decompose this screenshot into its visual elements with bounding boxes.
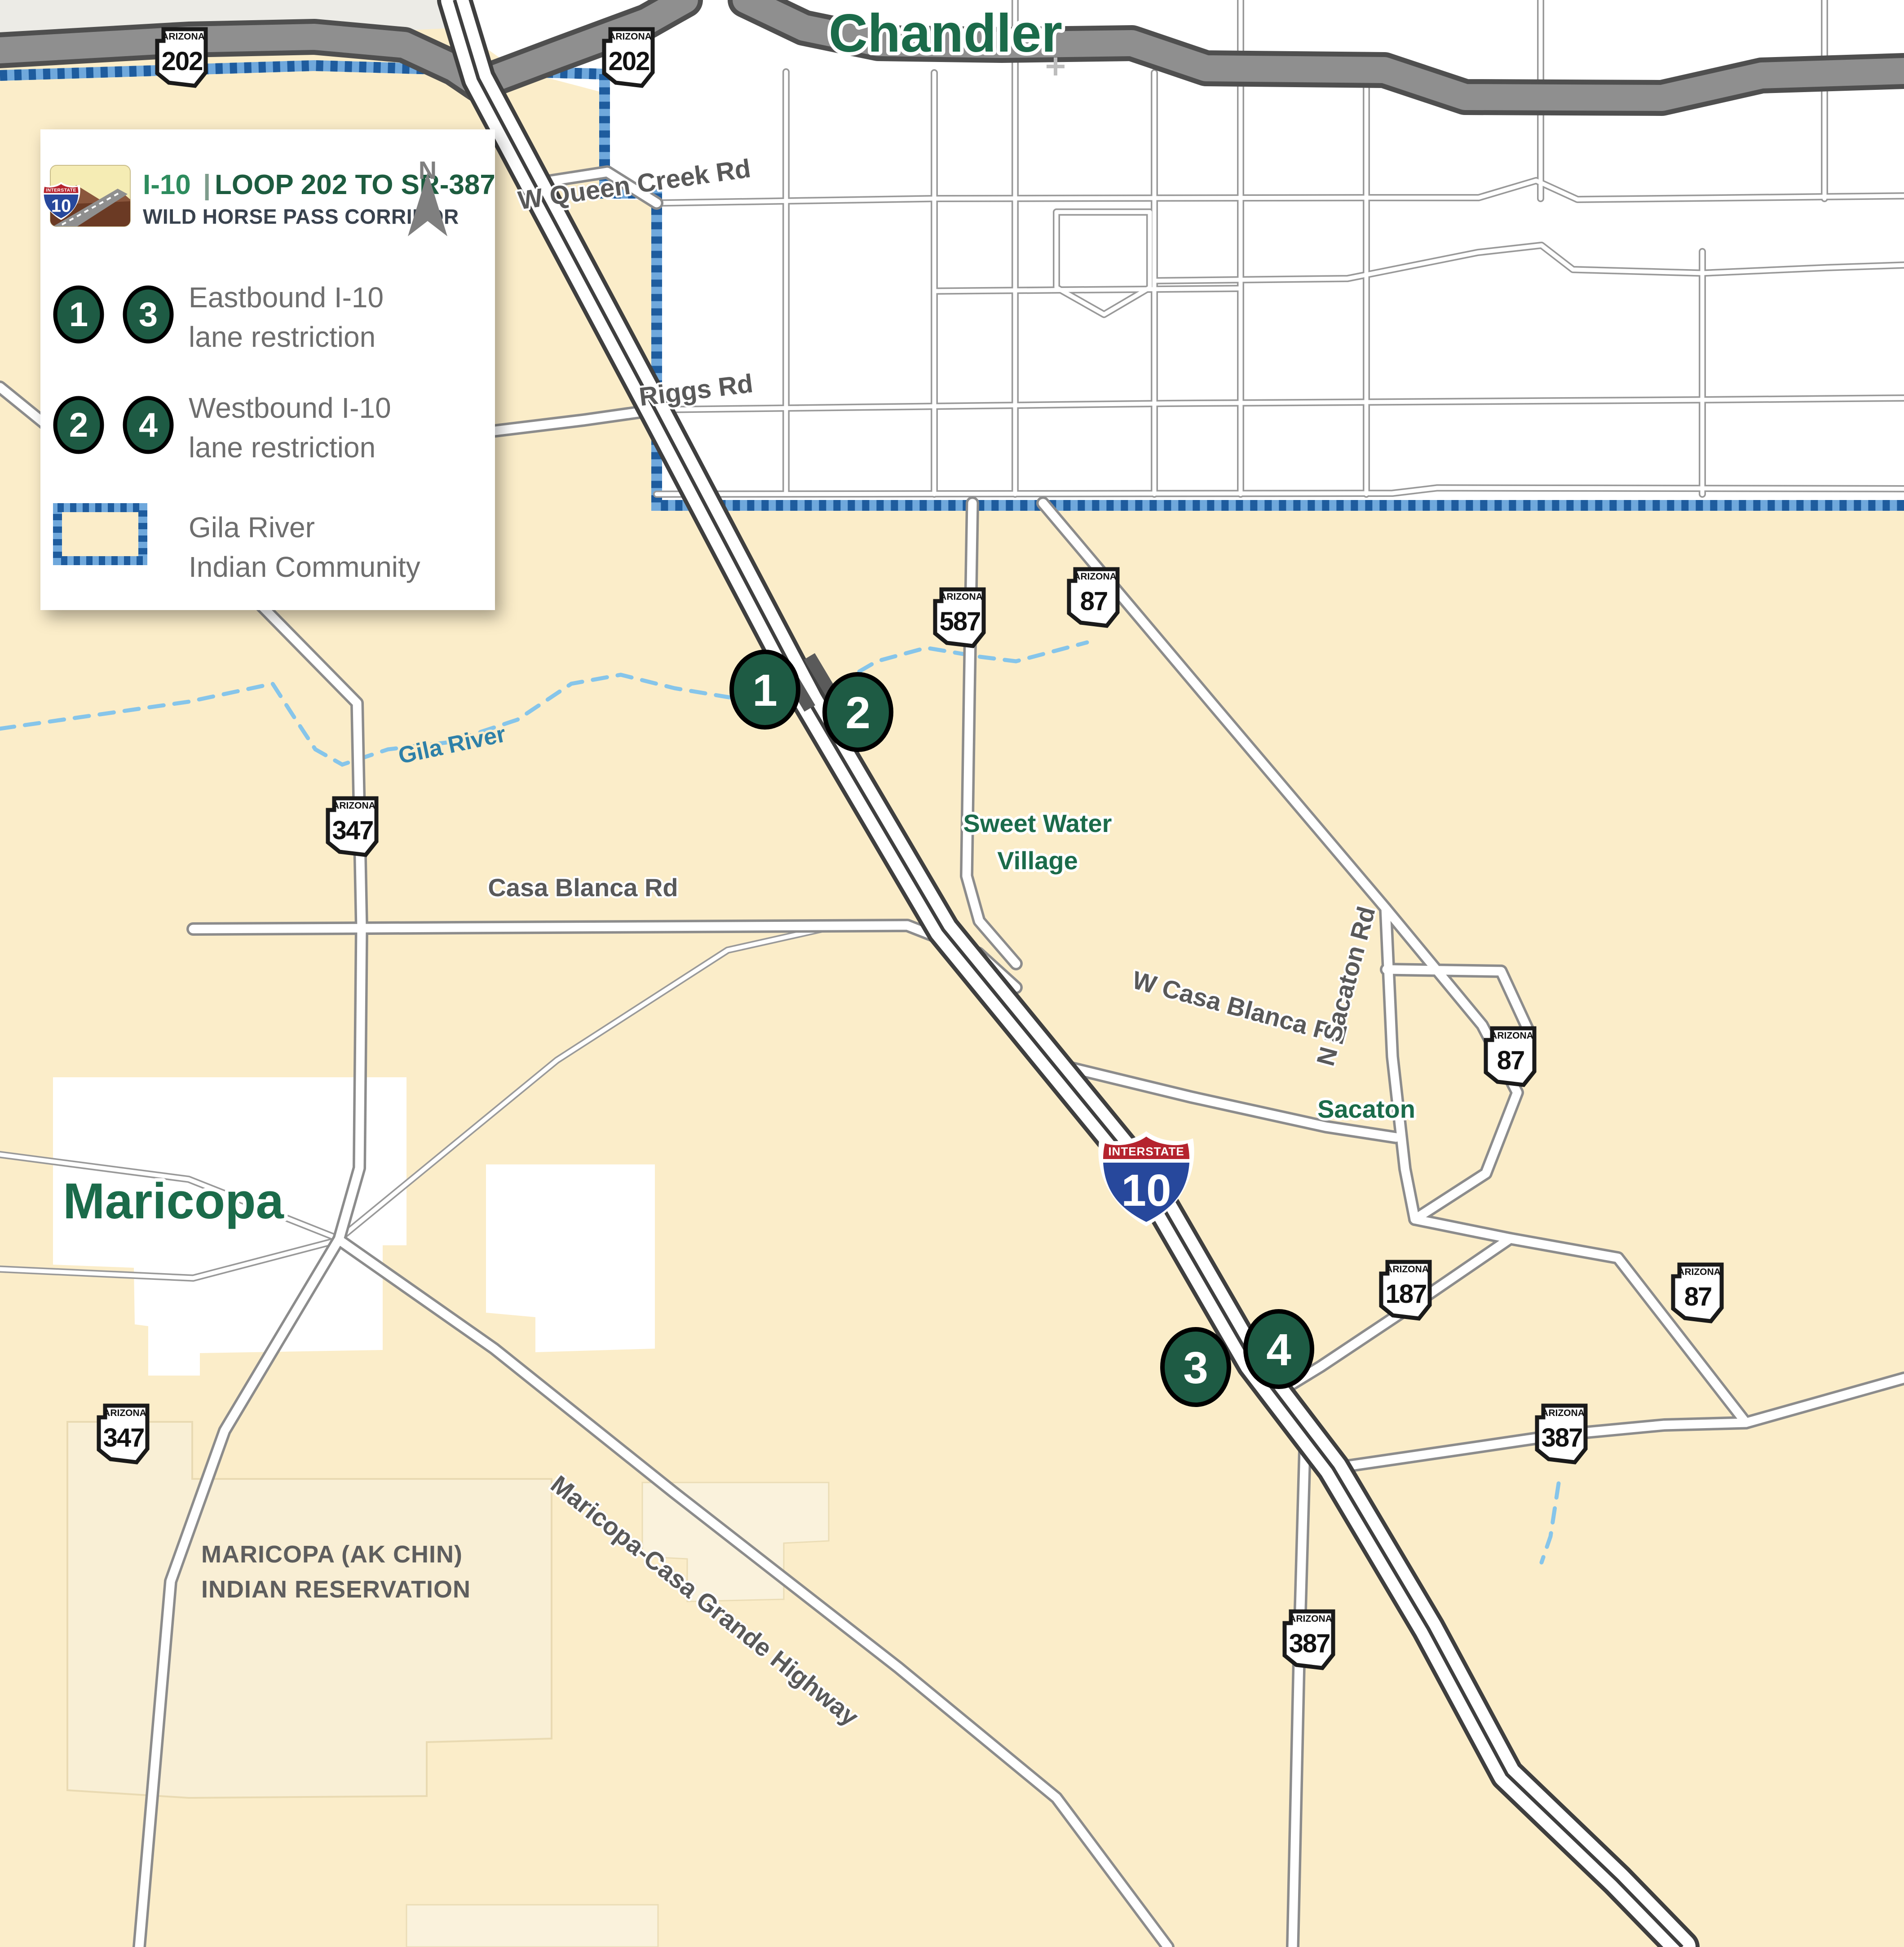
svg-text:ARIZONA: ARIZONA [1073,571,1117,582]
corridor-title-road: I-10 [143,169,191,200]
city-label-chandler: Chandler [829,3,1062,63]
corridor-title-rest: LOOP 202 TO SR-387 [215,169,495,200]
svg-text:87: 87 [1684,1282,1712,1311]
map-canvas: Chandler Maricopa Sweet Water Village Sa… [0,0,1904,1947]
svg-text:lane restriction: lane restriction [189,431,375,464]
route-shield-loop202-west: ARIZONA 202 [157,29,206,86]
svg-text:Eastbound I-10: Eastbound I-10 [189,281,384,314]
svg-text:INTERSTATE: INTERSTATE [1108,1145,1184,1158]
svg-text:Indian Community: Indian Community [189,551,420,583]
place-label-sacaton: Sacaton [1317,1095,1415,1123]
route-shield-sr87-mid: ARIZONA 87 [1486,1028,1534,1085]
svg-text:ARIZONA: ARIZONA [940,592,983,602]
route-shield-sr347-north: ARIZONA 347 [328,798,376,855]
route-shield-sr347-south: ARIZONA 347 [99,1406,147,1462]
marker-1: 1 [732,652,798,727]
svg-text:ARIZONA: ARIZONA [1386,1264,1429,1274]
svg-text:3: 3 [139,296,158,334]
svg-text:587: 587 [940,607,981,636]
marker-2: 2 [825,674,891,750]
svg-text:1: 1 [752,665,778,716]
svg-text:387: 387 [1289,1629,1330,1658]
svg-text:ARIZONA: ARIZONA [1542,1408,1585,1418]
svg-text:4: 4 [139,406,158,444]
svg-text:2: 2 [845,688,870,738]
route-shield-sr87-north: ARIZONA 87 [1069,569,1118,626]
route-shield-sr387-east: ARIZONA 387 [1537,1406,1586,1462]
svg-text:387: 387 [1542,1423,1582,1452]
svg-text:10: 10 [1121,1165,1171,1216]
svg-text:4: 4 [1266,1325,1291,1375]
corridor-thumbnail: INTERSTATE 10 [42,165,130,226]
route-shield-loop202-east: ARIZONA 202 [604,29,653,86]
svg-text:2: 2 [69,406,88,444]
reservation-label-line2: INDIAN RESERVATION [201,1576,471,1603]
route-shield-sr387-south: ARIZONA 387 [1285,1611,1333,1668]
route-shield-sr187: ARIZONA 187 [1381,1262,1430,1319]
city-label-maricopa: Maricopa [63,1173,284,1229]
place-label-sweet-water-line1: Sweet Water [963,809,1112,837]
svg-text:ARIZONA: ARIZONA [103,1408,146,1418]
svg-text:Gila River: Gila River [189,511,315,544]
place-label-sweet-water-line2: Village [997,846,1078,875]
svg-text:ARIZONA: ARIZONA [1678,1267,1721,1277]
svg-text:ARIZONA: ARIZONA [609,31,652,42]
svg-text:ARIZONA: ARIZONA [332,801,375,811]
svg-text:ARIZONA: ARIZONA [1490,1031,1533,1041]
svg-text:347: 347 [103,1423,144,1452]
svg-text:347: 347 [332,816,373,845]
svg-text:INTERSTATE: INTERSTATE [46,188,76,193]
marker-4: 4 [1246,1311,1312,1387]
svg-text:87: 87 [1497,1046,1524,1075]
svg-text:10: 10 [51,196,71,216]
reservation-label-line1: MARICOPA (AK CHIN) [201,1541,463,1568]
svg-text:ARIZONA: ARIZONA [162,31,205,42]
svg-text:Westbound I-10: Westbound I-10 [189,392,391,424]
svg-text:lane restriction: lane restriction [189,321,375,353]
route-shield-sr87-east: ARIZONA 87 [1673,1265,1722,1321]
route-shield-sr587: ARIZONA 587 [935,589,984,646]
svg-text:202: 202 [609,47,649,76]
marker-3: 3 [1162,1329,1229,1405]
corridor-title-separator: | [203,169,211,201]
svg-text:87: 87 [1080,587,1108,616]
svg-text:187: 187 [1386,1279,1427,1309]
road-label-casa-blanca: Casa Blanca Rd [488,873,678,902]
svg-text:3: 3 [1183,1343,1208,1393]
svg-text:202: 202 [162,47,203,76]
svg-text:ARIZONA: ARIZONA [1289,1614,1332,1624]
svg-text:1: 1 [69,296,88,334]
